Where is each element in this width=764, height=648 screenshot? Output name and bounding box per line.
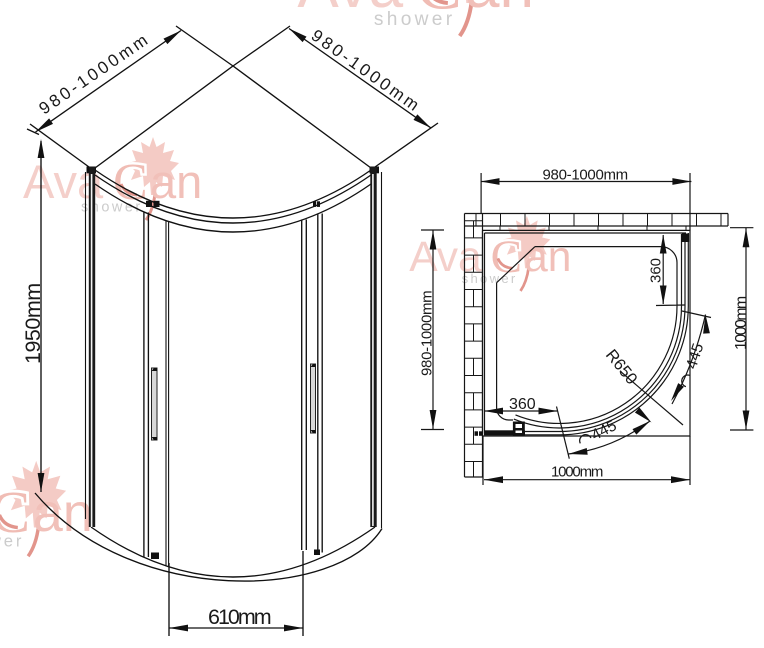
svg-text:980-1000mm: 980-1000mm — [419, 291, 436, 376]
svg-text:360: 360 — [648, 258, 665, 283]
svg-text:1000mm: 1000mm — [733, 296, 750, 350]
svg-text:1000mm: 1000mm — [551, 464, 603, 481]
svg-text:610mm: 610mm — [208, 605, 271, 629]
svg-text:980-1000mm: 980-1000mm — [543, 167, 628, 184]
svg-text:360: 360 — [509, 396, 536, 413]
svg-text:1950mm: 1950mm — [21, 283, 45, 364]
